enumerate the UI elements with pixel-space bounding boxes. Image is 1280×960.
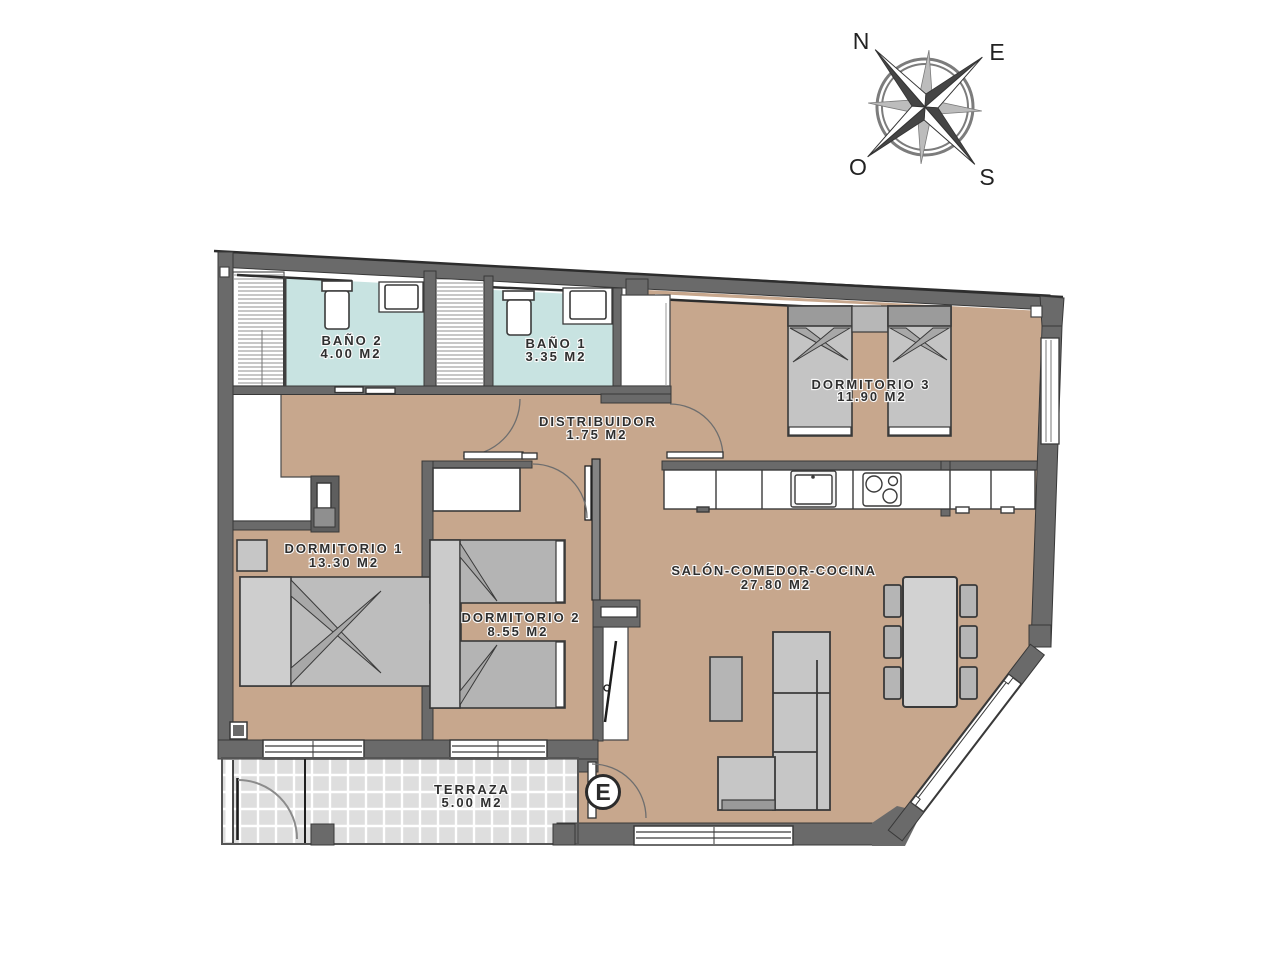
svg-text:E: E xyxy=(989,39,1004,65)
svg-text:N: N xyxy=(853,28,870,54)
svg-text:13.30 M2: 13.30 M2 xyxy=(309,555,379,570)
svg-text:5.00 M2: 5.00 M2 xyxy=(442,795,503,810)
svg-text:DORMITORIO 1: DORMITORIO 1 xyxy=(284,541,403,556)
svg-text:SALÓN-COMEDOR-COCINA: SALÓN-COMEDOR-COCINA xyxy=(671,563,876,578)
svg-text:8.55 M2: 8.55 M2 xyxy=(488,624,549,639)
svg-text:DORMITORIO 2: DORMITORIO 2 xyxy=(461,610,580,625)
svg-text:O: O xyxy=(849,154,867,180)
svg-text:3.35 M2: 3.35 M2 xyxy=(526,349,587,364)
svg-text:27.80 M2: 27.80 M2 xyxy=(741,577,811,592)
svg-text:E: E xyxy=(595,779,610,805)
svg-text:4.00 M2: 4.00 M2 xyxy=(321,346,382,361)
svg-text:S: S xyxy=(979,164,994,190)
svg-text:11.90 M2: 11.90 M2 xyxy=(837,389,907,404)
svg-text:1.75 M2: 1.75 M2 xyxy=(567,427,628,442)
